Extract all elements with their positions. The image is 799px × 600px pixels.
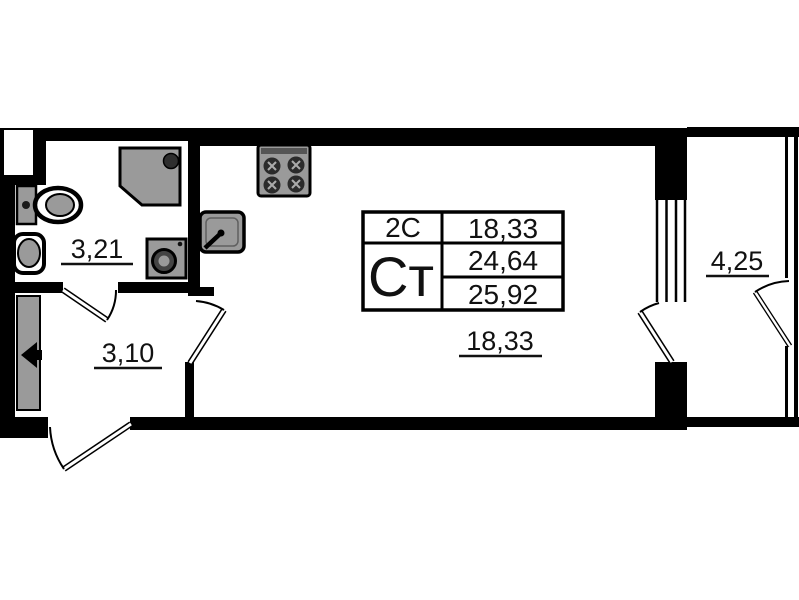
bathroom-area-label: 3,21	[71, 234, 124, 264]
balcony-glazing-outer	[794, 137, 798, 421]
balcony-door-arc	[640, 303, 659, 312]
window-living-balcony	[657, 200, 685, 302]
wall-bath-south-b	[118, 282, 200, 293]
entrance-arrow-icon	[17, 296, 42, 410]
bathroom-door	[63, 290, 116, 320]
sink-icon	[13, 234, 44, 273]
balcony-wall-bottom	[687, 417, 799, 427]
wall-niche-bottom	[0, 175, 46, 185]
wall-top-living	[188, 128, 687, 146]
info-table: 2С Ст 18,33 24,64 25,92	[363, 212, 563, 310]
wall-pier-bottom	[655, 362, 687, 430]
living-door	[190, 301, 224, 363]
balcony-wall-top	[687, 127, 799, 137]
balcony-door	[640, 303, 672, 362]
wall-bath-foot	[200, 287, 214, 296]
living-area-label: 18,33	[466, 326, 534, 356]
kitchen-sink-icon	[200, 212, 244, 252]
bathroom-door-arc	[107, 290, 116, 320]
floor-plan: 3,21 3,10 18,33 4,25 2С Ст 18,33 24,64 2…	[0, 0, 799, 600]
washing-machine-icon	[147, 239, 186, 278]
wall-niche-opening	[4, 130, 33, 175]
entrance-door-arc	[50, 427, 64, 469]
table-living-area: 18,33	[468, 213, 538, 244]
living-door-arc	[196, 301, 224, 310]
table-total-area: 25,92	[468, 279, 538, 310]
table-unit-type: Ст	[368, 245, 434, 308]
balcony-area-label: 4,25	[711, 246, 764, 276]
balcony-glazing-inner-upper	[785, 137, 788, 278]
stove-icon	[258, 145, 310, 196]
toilet-icon	[17, 186, 81, 224]
walls	[0, 128, 687, 438]
wall-hall-stub	[185, 362, 194, 417]
floor-plan-svg: 3,21 3,10 18,33 4,25 2С Ст 18,33 24,64 2…	[0, 0, 799, 600]
wall-bath-east	[188, 139, 200, 296]
shower-icon	[120, 148, 180, 205]
table-area-without-balcony: 24,64	[468, 245, 538, 276]
table-unit-class: 2С	[385, 212, 421, 243]
balcony-glazing-door	[755, 281, 790, 346]
wall-pier-top	[655, 146, 687, 200]
entrance-door	[50, 424, 131, 469]
wall-bottom-left-corner	[0, 417, 48, 438]
wall-bottom	[130, 417, 687, 430]
hallway-area-label: 3,10	[102, 338, 155, 368]
wall-left	[0, 141, 15, 438]
wall-bath-south-a	[15, 282, 63, 293]
balcony-glazing-door-arc	[755, 281, 789, 292]
balcony-glazing-inner-lower	[785, 346, 788, 421]
